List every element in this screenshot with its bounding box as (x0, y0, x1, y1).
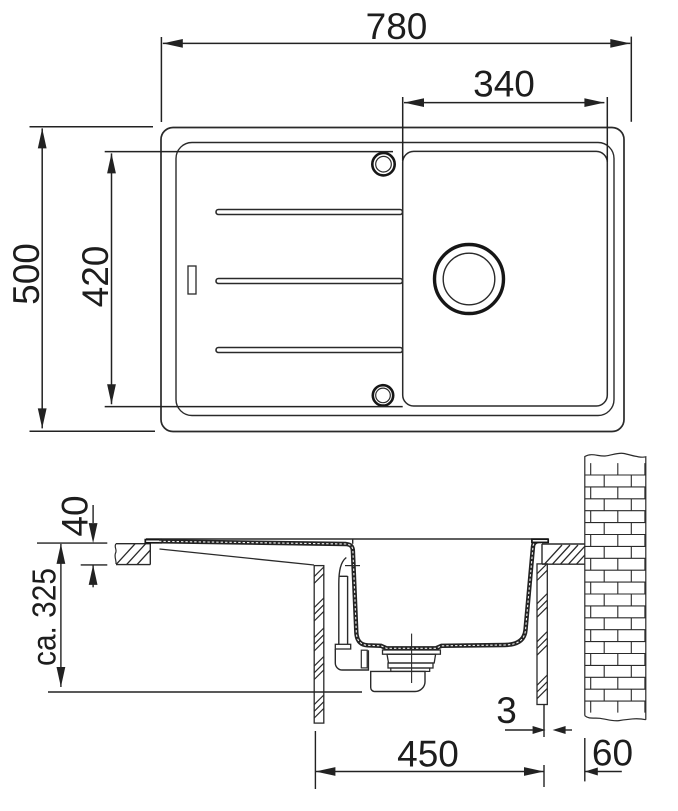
svg-text:780: 780 (366, 6, 428, 47)
svg-text:3: 3 (496, 690, 517, 731)
svg-text:500: 500 (6, 243, 47, 305)
svg-text:450: 450 (397, 734, 459, 775)
svg-text:ca. 325: ca. 325 (26, 568, 63, 666)
svg-text:420: 420 (75, 246, 116, 308)
svg-text:60: 60 (592, 733, 633, 774)
svg-text:340: 340 (473, 64, 535, 105)
svg-text:40: 40 (55, 495, 96, 536)
